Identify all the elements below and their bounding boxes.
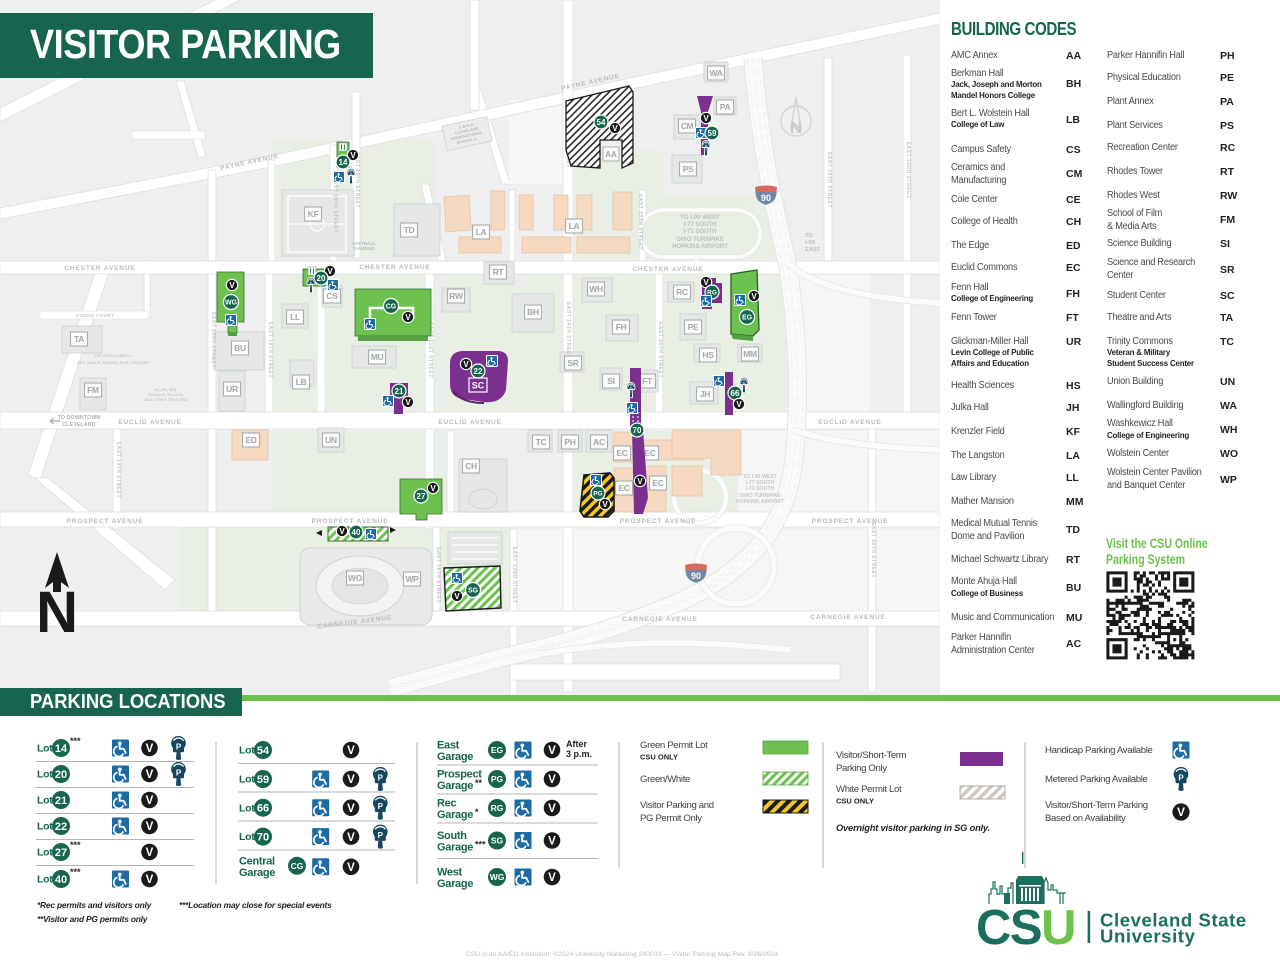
svg-text:EUCLID AVENUE: EUCLID AVENUE	[438, 419, 502, 426]
svg-text:Central: Central	[239, 855, 275, 867]
svg-text:I-71 SOUTH: I-71 SOUTH	[746, 486, 775, 492]
svg-text:LA: LA	[476, 227, 487, 237]
svg-text:SR: SR	[567, 358, 578, 368]
svg-text:EAST 14TH STREET: EAST 14TH STREET	[115, 442, 121, 498]
svg-text:Visitor Parking and: Visitor Parking and	[640, 800, 714, 811]
svg-text:Green/White: Green/White	[640, 774, 690, 785]
svg-text:Lot: Lot	[239, 802, 255, 814]
svg-text:CG: CG	[291, 861, 304, 871]
svg-text:LB: LB	[296, 377, 307, 387]
svg-text:LA: LA	[569, 221, 580, 231]
svg-text:PH: PH	[564, 437, 575, 447]
svg-text:PE: PE	[688, 322, 699, 332]
svg-text:ART, DANCE, DESIGN, FILM, THEA: ART, DANCE, DESIGN, FILM, THEATRE	[77, 361, 149, 365]
svg-text:Garage: Garage	[437, 751, 473, 763]
svg-text:EAST 24TH STREET: EAST 24TH STREET	[565, 302, 571, 358]
svg-text:V: V	[1177, 805, 1185, 819]
svg-text:ALLEN, MIM,: ALLEN, MIM,	[154, 388, 177, 392]
svg-text:PG Permit Only: PG Permit Only	[640, 813, 702, 824]
svg-text:After: After	[566, 739, 587, 749]
svg-text:WA: WA	[709, 68, 722, 78]
svg-text:I-90: I-90	[805, 240, 815, 246]
svg-text:EAST 30TH STREET: EAST 30TH STREET	[870, 522, 876, 578]
svg-text:WILKALE, PALACE,: WILKALE, PALACE,	[148, 393, 183, 397]
svg-text:Lot: Lot	[37, 847, 53, 859]
svg-text:Lot: Lot	[37, 821, 53, 833]
svg-text:RC: RC	[676, 287, 688, 297]
svg-text:*Rec permits and visitors only: *Rec permits and visitors only	[37, 900, 152, 910]
svg-text:TD: TD	[404, 225, 415, 235]
svg-text:SG: SG	[491, 836, 504, 846]
svg-text:EG: EG	[742, 315, 753, 322]
svg-text:Lot: Lot	[37, 769, 53, 781]
svg-text:Based on Availability: Based on Availability	[1045, 813, 1126, 824]
svg-text:Rec: Rec	[437, 798, 456, 810]
svg-text:WO: WO	[348, 573, 363, 583]
svg-text:HOPKINS AIRPORT: HOPKINS AIRPORT	[672, 244, 728, 250]
svg-text:***Location may close for spec: ***Location may close for special events	[179, 900, 332, 910]
svg-text:Garage: Garage	[437, 878, 473, 890]
svg-text:Handicap Parking Available: Handicap Parking Available	[1045, 745, 1153, 756]
svg-text:TO DOWNTOWN: TO DOWNTOWN	[58, 415, 101, 421]
svg-text:CARNEGIE AVENUE: CARNEGIE AVENUE	[810, 614, 885, 621]
svg-text:CSU ARTS CAMPUS:: CSU ARTS CAMPUS:	[94, 354, 133, 358]
svg-text:EAST 22ND STREET: EAST 22ND STREET	[511, 547, 517, 604]
svg-text:ED: ED	[245, 435, 256, 445]
svg-text:Garage: Garage	[239, 867, 275, 879]
svg-text:90: 90	[761, 193, 771, 203]
svg-text:54: 54	[597, 118, 606, 127]
svg-text:CSU ONLY: CSU ONLY	[640, 753, 678, 762]
svg-text:CHESTER AVENUE: CHESTER AVENUE	[359, 264, 430, 271]
svg-text:University: University	[1100, 926, 1196, 947]
svg-text:Garage: Garage	[437, 780, 473, 792]
svg-text:27: 27	[55, 847, 67, 859]
svg-text:54: 54	[257, 745, 270, 757]
svg-text:**: **	[475, 778, 483, 788]
svg-text:I-77 SOUTH: I-77 SOUTH	[683, 222, 716, 228]
svg-text:EAST 30TH STREET: EAST 30TH STREET	[826, 152, 832, 208]
svg-text:N: N	[790, 118, 802, 137]
svg-text:UR: UR	[226, 384, 238, 394]
svg-text:EAST 33RD STREET: EAST 33RD STREET	[905, 142, 911, 199]
svg-text:Parking Only: Parking Only	[836, 763, 887, 774]
svg-text:Green Permit Lot: Green Permit Lot	[640, 740, 708, 751]
svg-text:EAST 26TH STREET: EAST 26TH STREET	[657, 322, 663, 378]
svg-text:BU: BU	[234, 343, 246, 353]
svg-text:EG: EG	[491, 745, 504, 755]
svg-text:**Visitor and PG permits only: **Visitor and PG permits only	[37, 914, 148, 924]
svg-text:***: ***	[70, 867, 81, 877]
svg-text:AC: AC	[593, 437, 605, 447]
svg-text:CSU: CSU	[976, 901, 1075, 955]
svg-text:CS: CS	[326, 291, 338, 301]
svg-text:RW: RW	[449, 291, 464, 301]
svg-text:EC: EC	[618, 483, 629, 493]
svg-text:70: 70	[257, 832, 269, 844]
svg-text:EAST: EAST	[805, 247, 821, 253]
svg-text:TO: TO	[805, 233, 813, 239]
svg-text:WP: WP	[405, 574, 419, 584]
svg-text:***: ***	[475, 840, 486, 850]
svg-text:Garage: Garage	[437, 842, 473, 854]
svg-text:CG: CG	[386, 304, 397, 311]
svg-text:RG: RG	[491, 803, 504, 813]
svg-text:21: 21	[395, 387, 404, 396]
svg-text:SG: SG	[468, 588, 479, 595]
svg-text:FM: FM	[87, 385, 99, 395]
svg-text:TA: TA	[74, 334, 84, 344]
svg-text:3 p.m.: 3 p.m.	[566, 749, 592, 759]
svg-text:EC: EC	[616, 448, 627, 458]
svg-text:66: 66	[731, 389, 740, 398]
svg-text:22: 22	[55, 821, 67, 833]
svg-text:EC: EC	[644, 448, 655, 458]
svg-text:SI: SI	[607, 376, 614, 386]
svg-text:PS: PS	[683, 164, 694, 174]
svg-text:BH: BH	[527, 307, 539, 317]
svg-text:PA: PA	[720, 102, 731, 112]
svg-text:Overnight visitor parking in S: Overnight visitor parking in SG only.	[836, 823, 990, 833]
svg-text:South: South	[437, 830, 467, 842]
svg-text:14: 14	[339, 158, 348, 167]
svg-text:White Permit Lot: White Permit Lot	[836, 784, 902, 795]
svg-text:CH: CH	[465, 461, 477, 471]
svg-text:Lot: Lot	[239, 774, 255, 786]
svg-text:CM: CM	[681, 121, 694, 131]
svg-text:EC: EC	[652, 478, 663, 488]
svg-text:WG: WG	[225, 300, 238, 307]
svg-text:West: West	[437, 867, 463, 879]
svg-text:Visitor/Short-Term Parking: Visitor/Short-Term Parking	[1045, 800, 1148, 811]
svg-text:AA: AA	[605, 150, 617, 159]
svg-text:EAST 17TH STREET: EAST 17TH STREET	[210, 312, 216, 368]
svg-text:***: ***	[70, 840, 81, 850]
svg-text:22: 22	[474, 367, 483, 376]
svg-text:EAST 25TH STREET: EAST 25TH STREET	[637, 194, 643, 250]
svg-text:UN: UN	[325, 435, 337, 445]
svg-text:TC: TC	[536, 437, 547, 447]
svg-text:14: 14	[55, 743, 68, 755]
svg-text:I-71 SOUTH: I-71 SOUTH	[683, 229, 716, 235]
svg-text:PG: PG	[491, 774, 504, 784]
svg-text:DIAMOND: DIAMOND	[353, 246, 374, 251]
svg-text:N: N	[36, 580, 78, 645]
svg-text:Lot: Lot	[37, 743, 53, 755]
svg-text:40: 40	[352, 528, 361, 537]
svg-text:EAST 18TH STREET: EAST 18TH STREET	[435, 547, 441, 603]
svg-text:20: 20	[55, 769, 67, 781]
svg-text:20: 20	[317, 274, 326, 283]
svg-text:TO I-90 WEST: TO I-90 WEST	[680, 215, 720, 221]
svg-text:PROSPECT AVENUE: PROSPECT AVENUE	[620, 518, 697, 525]
svg-text:FT: FT	[642, 376, 653, 386]
svg-text:JH: JH	[700, 389, 710, 399]
svg-text:SC: SC	[472, 380, 485, 390]
svg-text:70: 70	[633, 426, 642, 435]
svg-text:***: ***	[70, 736, 81, 746]
svg-text:59: 59	[708, 129, 717, 138]
svg-text:21: 21	[55, 795, 67, 807]
svg-text:EAST 18TH STREET: EAST 18TH STREET	[267, 322, 273, 378]
svg-text:HS: HS	[702, 350, 714, 360]
svg-text:Lot: Lot	[37, 795, 53, 807]
svg-text:*: *	[475, 807, 479, 817]
svg-text:RT: RT	[493, 267, 505, 277]
svg-text:27: 27	[417, 492, 426, 501]
svg-text:59: 59	[257, 774, 269, 786]
svg-text:Lot: Lot	[37, 874, 53, 886]
svg-text:Lot: Lot	[239, 831, 255, 843]
svg-text:AND OTHER THEATERS: AND OTHER THEATERS	[144, 398, 188, 402]
svg-text:PROSPECT AVENUE: PROSPECT AVENUE	[67, 518, 144, 525]
svg-text:CLEVELAND: CLEVELAND	[62, 422, 95, 428]
svg-text:CHESTER AVENUE: CHESTER AVENUE	[632, 266, 703, 273]
svg-text:EAST 19TH STREET: EAST 19TH STREET	[332, 177, 338, 233]
svg-text:WG: WG	[490, 872, 505, 882]
svg-text:90: 90	[691, 571, 701, 581]
svg-text:CARNEGIE AVENUE: CARNEGIE AVENUE	[622, 616, 697, 623]
svg-text:WH: WH	[589, 284, 603, 294]
svg-text:CSU ONLY: CSU ONLY	[836, 797, 874, 806]
svg-text:LL: LL	[290, 312, 300, 322]
svg-text:KF: KF	[308, 209, 319, 219]
svg-text:FH: FH	[616, 322, 627, 332]
svg-text:East: East	[437, 740, 460, 752]
svg-text:66: 66	[257, 803, 269, 815]
svg-text:DODGE COURT: DODGE COURT	[76, 313, 114, 318]
svg-text:MM: MM	[743, 349, 757, 359]
svg-text:PROSPECT AVENUE: PROSPECT AVENUE	[312, 518, 389, 525]
svg-text:PG: PG	[593, 490, 602, 497]
svg-text:Garage: Garage	[437, 809, 473, 821]
svg-text:EUCLID AVENUE: EUCLID AVENUE	[818, 419, 882, 426]
svg-text:Metered Parking Available: Metered Parking Available	[1045, 774, 1148, 785]
svg-text:CHESTER AVENUE: CHESTER AVENUE	[64, 265, 135, 272]
svg-text:MU: MU	[371, 352, 384, 362]
svg-text:Lot: Lot	[239, 745, 255, 757]
svg-text:EUCLID AVENUE: EUCLID AVENUE	[118, 419, 182, 426]
svg-text:HOPKINS AIRPORT: HOPKINS AIRPORT	[736, 499, 785, 505]
svg-text:OHIO TURNPIKE: OHIO TURNPIKE	[676, 237, 724, 243]
svg-text:40: 40	[55, 874, 67, 886]
svg-text:Visitor/Short-Term: Visitor/Short-Term	[836, 750, 907, 761]
